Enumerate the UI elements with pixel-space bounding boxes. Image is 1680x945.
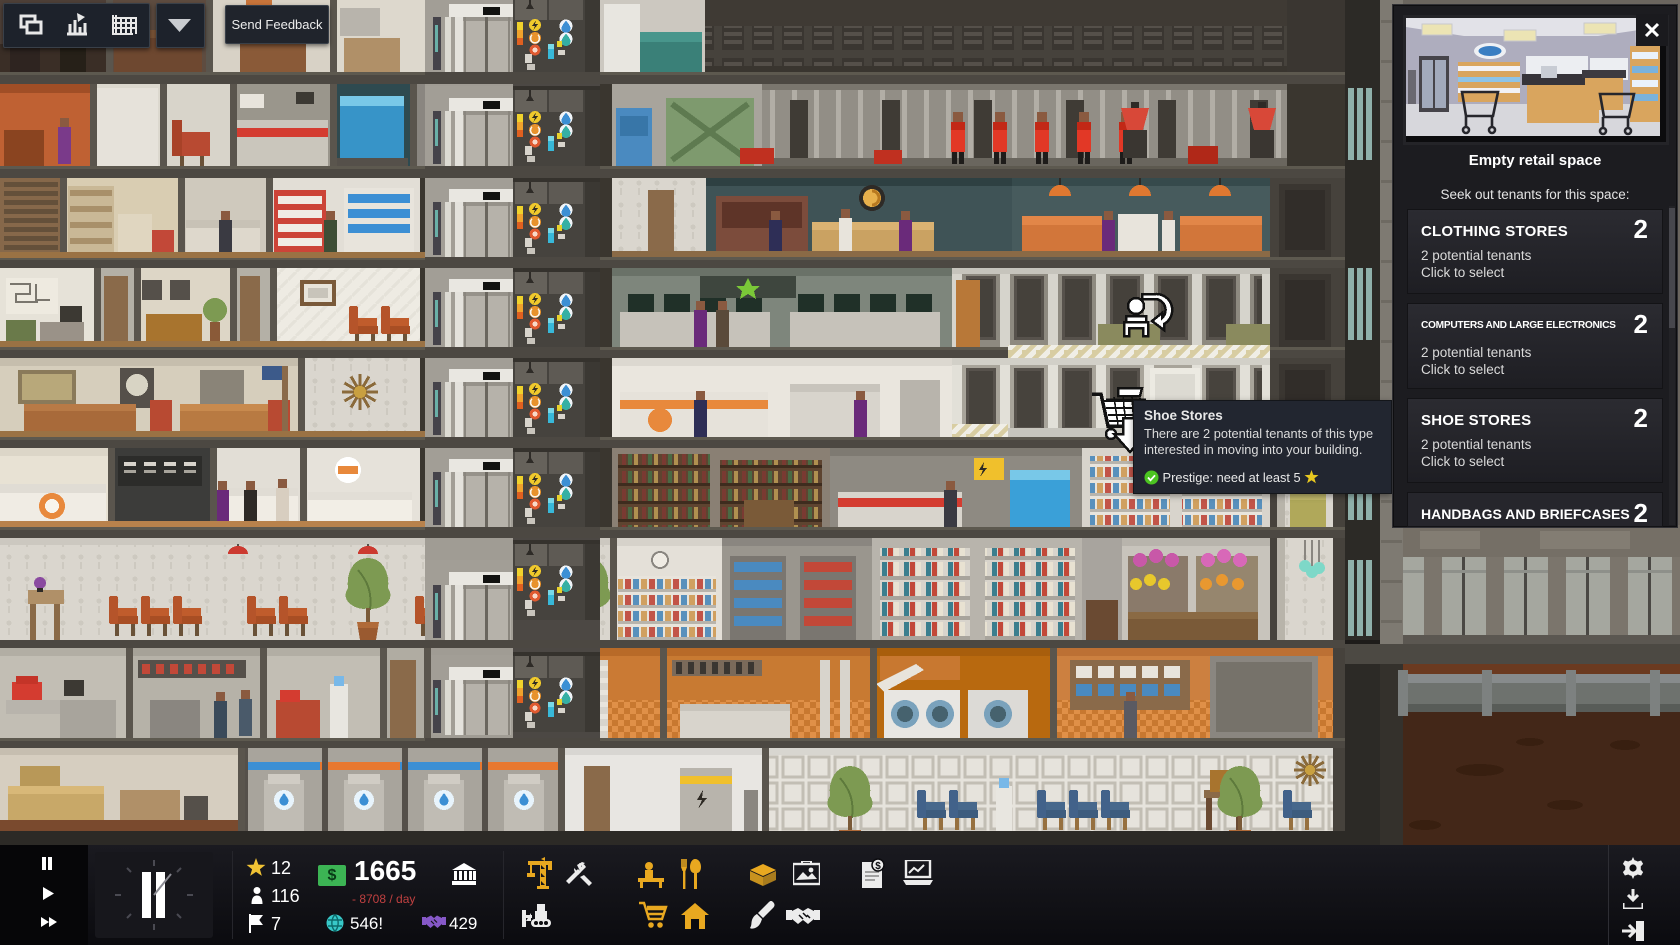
svg-text:$: $ [875, 861, 881, 872]
